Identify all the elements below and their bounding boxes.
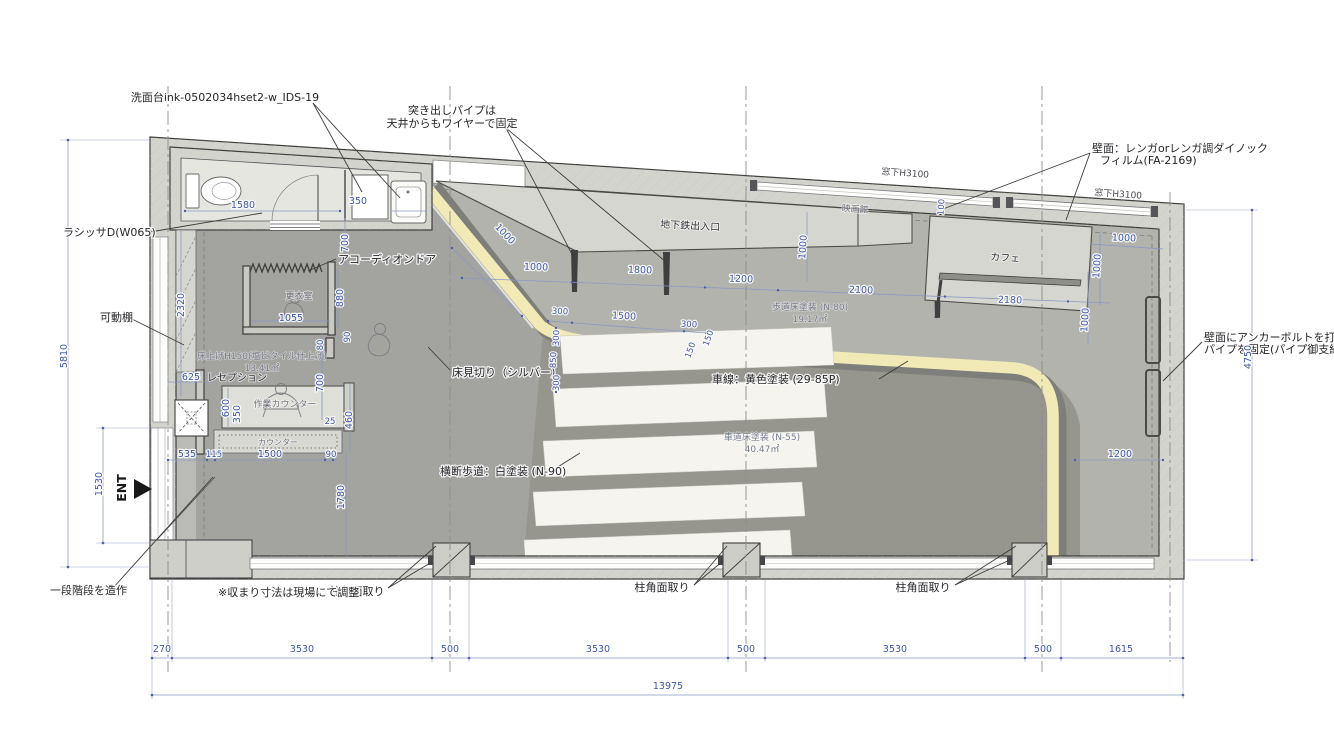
dim-rec-1780: 1780	[336, 485, 347, 509]
movable-shelf-label: 可動棚	[100, 310, 133, 324]
pipe-note-line1: 突き出しパイプは	[408, 103, 496, 117]
sidewalk-label-line1: 歩道床塗装 (N-80)	[772, 301, 848, 313]
dim-chg-90: 90	[343, 332, 353, 343]
road-label-line2: 40.47㎡	[745, 444, 780, 455]
dim-rec-535: 535	[178, 449, 196, 460]
plan-canvas: 洗面台ink-0502034hset2-w_IDS-19 突き出しパイプは 天井…	[0, 0, 1334, 750]
dim-cw-1500: 1500	[612, 310, 637, 322]
fit-note-label: ※収まり寸法は現場にて調整	[218, 585, 359, 599]
work-counter-label: 作業カウンター	[253, 398, 316, 410]
dim-wall-100: 100	[936, 199, 947, 216]
dim-cw-850: 850	[549, 352, 560, 369]
toilet-door-opening	[270, 221, 320, 230]
dim-bottom-3530-b: 3530	[586, 644, 610, 655]
sink-model-label: 洗面台ink-0502034hset2-w_IDS-19	[131, 90, 319, 104]
dim-rec-460: 460	[344, 411, 355, 429]
accordion-door-label: アコーディオンドア	[338, 252, 436, 266]
dim-sub-1200: 1200	[729, 274, 754, 286]
dim-rec-115: 115	[206, 450, 222, 460]
dim-rec-90: 90	[326, 450, 337, 460]
pipe-post-2	[663, 252, 670, 295]
pipe-post-1	[571, 250, 578, 292]
wall-finish-line1: 壁面：レンガorレンガ調ダイノック	[1092, 141, 1268, 155]
column-1	[428, 543, 475, 577]
dim-bottom-270: 270	[153, 644, 171, 655]
dim-bottom-500-c: 500	[1034, 644, 1052, 655]
left-window-band	[153, 237, 168, 422]
entrance-arrow-icon	[134, 479, 152, 499]
dim-chg-80: 80	[316, 340, 326, 351]
raised-floor-line2: 13.41㎡	[245, 363, 280, 374]
dim-bottom-3530-a: 3530	[290, 644, 314, 655]
sidewalk-label-line2: 19.17㎡	[793, 314, 828, 325]
dim-bottom-total: 13975	[653, 681, 683, 692]
lane-paint-label: 車線：黄色塗装 (29-85P)	[712, 372, 840, 386]
dim-chg-1055: 1055	[279, 313, 303, 324]
dim-sub-1000-v: 1000	[797, 235, 810, 260]
dim-rec-350: 350	[232, 405, 243, 423]
dim-rec-600: 600	[221, 399, 232, 417]
entry-step-block	[150, 540, 252, 578]
dim-cafe-2180: 2180	[998, 295, 1023, 307]
dim-bottom-500-a: 500	[441, 644, 459, 655]
window-sill-label-left: 窓下H3100	[881, 165, 930, 180]
floor-plan-drawing: 洗面台ink-0502034hset2-w_IDS-19 突き出しパイプは 天井…	[0, 0, 1334, 750]
dim-5810: 5810	[59, 344, 70, 368]
dim-cw-300-c: 300	[552, 330, 563, 347]
raised-floor-line1: 床上げH150(塩ビタイル仕上げ)	[197, 350, 327, 362]
dim-rec-625: 625	[182, 372, 200, 383]
column-chamfer-label-2: 柱角面取り	[635, 580, 690, 594]
toilet-tank	[186, 174, 199, 208]
crosswalk-paint-label: 横断歩道：白塗装 (N-90)	[440, 464, 566, 478]
dim-chg-700: 700	[315, 374, 326, 392]
dim-rec-25: 25	[325, 417, 336, 427]
dim-1530: 1530	[94, 472, 105, 496]
column-chamfer-label-3: 柱角面取り	[896, 580, 951, 594]
dim-cw-300-a: 300	[552, 307, 569, 318]
dim-sink-700: 700	[340, 234, 351, 252]
road-label-line1: 車道床塗装 (N-55)	[724, 431, 800, 443]
dim-cafe-1000-b: 1000	[1091, 254, 1104, 279]
dim-cafe-1000-c: 1000	[1079, 308, 1092, 333]
dim-bottom-3530-c: 3530	[883, 644, 907, 655]
pipe-note-line2: 天井からもワイヤーで固定	[386, 116, 517, 130]
wall-finish-line2: フィルム(FA-2169)	[1100, 154, 1197, 167]
entrance-label: ENT	[114, 474, 129, 502]
entrance-opening	[151, 428, 173, 540]
dim-right-1200: 1200	[1108, 449, 1132, 460]
column-3	[1007, 543, 1052, 577]
door-model-label: ラシッサD(W065)	[63, 226, 156, 239]
anchor-note-line2: パイプを固定(パイプ御支給)	[1204, 342, 1334, 356]
changing-room-label: 更衣室	[285, 290, 312, 302]
dim-toilet-350: 350	[349, 196, 367, 207]
anchor-note-line1: 壁面にアンカーボルトを打ち、	[1204, 330, 1334, 344]
dim-cw-300-d: 300	[552, 375, 563, 392]
cafe-label: カフェ	[990, 251, 1021, 265]
dim-bottom-500-b: 500	[737, 644, 755, 655]
dim-sub-1800: 1800	[628, 265, 653, 277]
dim-sub-1000: 1000	[524, 262, 549, 274]
dim-cw-300-b: 300	[681, 320, 698, 331]
dim-sub-2100: 2100	[849, 285, 874, 297]
dim-cafe-1000-a: 1000	[1112, 232, 1137, 244]
dim-chg-880: 880	[335, 289, 346, 307]
dim-toilet-1580: 1580	[231, 200, 255, 211]
step-note-label: 一段階段を造作	[50, 583, 127, 597]
counter-label: カウンター	[258, 438, 298, 447]
floor-divider-label: 床見切り（シルバー）	[452, 365, 562, 379]
dim-rec-1500: 1500	[258, 449, 282, 460]
dim-4750: 4750	[1243, 345, 1254, 369]
dim-2320: 2320	[176, 293, 187, 317]
dim-bottom-1615: 1615	[1109, 644, 1133, 655]
